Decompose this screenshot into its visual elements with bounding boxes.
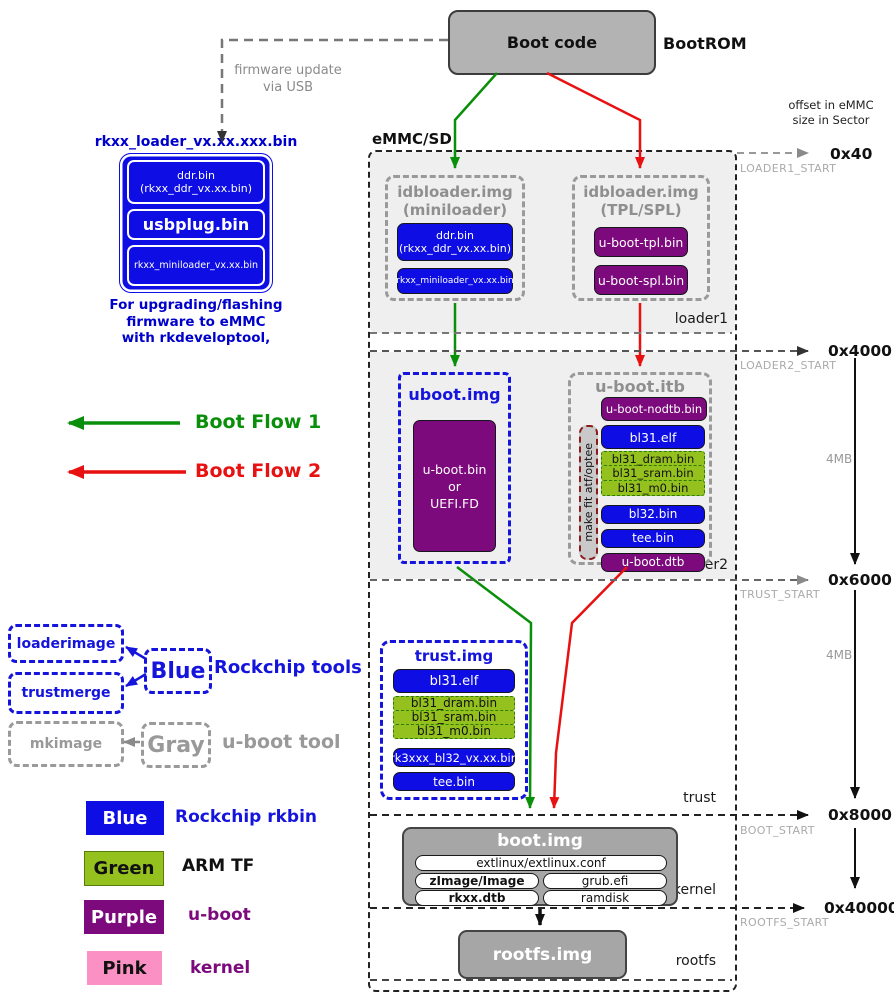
boot-flow-2-label: Boot Flow 2 xyxy=(195,460,321,482)
loader-tool-box: ddr.bin (rkxx_ddr_vx.xx.bin) usbplug.bin… xyxy=(120,154,272,292)
uboot-img-box: uboot.img u-boot.bin or UEFI.FD xyxy=(398,372,511,564)
trust-green-group: bl31_dram.bin bl31_sram.bin bl31_m0.bin xyxy=(393,696,515,740)
idbloader-tpl-title1: idbloader.img xyxy=(583,183,699,201)
trust-img-box: trust.img bl31.elf bl31_dram.bin bl31_sr… xyxy=(380,640,528,800)
make-fit-atf-optee-box: make fit atf/optee xyxy=(579,425,598,560)
trust-stack: bl31.elf bl31_dram.bin bl31_sram.bin bl3… xyxy=(393,669,515,791)
rootfs-start-label: ROOTFS_START xyxy=(740,916,829,929)
trustmerge-box: trustmerge xyxy=(8,672,124,714)
caption-line3: with rkdeveloptool, xyxy=(122,330,271,347)
boot-code-box: Boot code xyxy=(448,10,656,75)
uboot-itb-box: u-boot.itb u-boot-nodtb.bin make fit atf… xyxy=(568,372,712,565)
trust-bl31-dram: bl31_dram.bin xyxy=(393,696,515,712)
offset-0x40000: 0x40000 xyxy=(824,899,894,917)
trust-start-label: TRUST_START xyxy=(740,588,820,601)
uboot-nodtb-bin: u-boot-nodtb.bin xyxy=(601,397,707,421)
uboot-bin-line2: or xyxy=(448,478,461,495)
legend-swatch-pink: Pink xyxy=(87,951,162,985)
zimage-image: zImage/Image xyxy=(415,873,539,889)
loader-tool-caption: For upgrading/flashing firmware to eMMC … xyxy=(86,297,306,347)
uboot-itb-stack: bl31.elf bl31_dram.bin bl31_sram.bin bl3… xyxy=(601,425,705,572)
loader-tool-usbplug: usbplug.bin xyxy=(127,209,265,240)
boot-flow-diagram: Boot code BootROM offset in eMMC size in… xyxy=(0,0,894,1000)
offset-0x6000: 0x6000 xyxy=(828,571,892,589)
itb-green-group: bl31_dram.bin bl31_sram.bin bl31_m0.bin xyxy=(601,451,705,496)
trust-bl31-elf: bl31.elf xyxy=(393,669,515,693)
boot-img-title: boot.img xyxy=(404,831,676,851)
uboot-spl-bin: u-boot-spl.bin xyxy=(594,265,688,295)
legend-label-rockchip-rkbin: Rockchip rkbin xyxy=(175,807,317,827)
ddr-line2: (rkxx_ddr_vx.xx.bin) xyxy=(140,182,252,195)
blue-to-loaderimage-arrow xyxy=(126,647,146,659)
uboot-tpl-bin: u-boot-tpl.bin xyxy=(594,227,688,257)
size-4mb-1: 4MB xyxy=(826,452,852,466)
trust-bl31-m0: bl31_m0.bin xyxy=(393,724,515,740)
make-fit-label: make fit atf/optee xyxy=(582,443,595,542)
idbloader-miniloader-box: idbloader.img (miniloader) ddr.bin (rkxx… xyxy=(385,175,525,301)
grub-efi: grub.efi xyxy=(543,873,667,889)
legend-swatch-green: Green xyxy=(84,851,164,886)
loader-tool-ddr: ddr.bin (rkxx_ddr_vx.xx.bin) xyxy=(127,160,265,204)
loader-tool-title: rkxx_loader_vx.xx.xxx.bin xyxy=(86,134,306,150)
loader-tool-miniloader: rkxx_miniloader_vx.xx.bin xyxy=(127,245,265,286)
legend-label-arm-tf: ARM TF xyxy=(182,856,254,876)
size-4mb-2: 4MB xyxy=(826,648,852,662)
itb-bl31-elf: bl31.elf xyxy=(601,425,705,449)
itb-bl31-dram: bl31_dram.bin xyxy=(601,451,705,467)
ddr-line1: ddr.bin xyxy=(177,169,215,182)
blue-tool-box: Blue xyxy=(144,648,212,694)
emmc-label: eMMC/SD xyxy=(372,130,452,148)
legend-swatch-purple: Purple xyxy=(84,900,164,934)
rootfs-img-box: rootfs.img xyxy=(458,930,627,979)
loader2-start-label: LOADER2_START xyxy=(740,359,836,372)
itb-bl31-m0: bl31_m0.bin xyxy=(601,480,705,496)
gray-tool-box: Gray xyxy=(141,722,211,768)
loaderimage-box: loaderimage xyxy=(8,624,124,663)
trust-tee-bin: tee.bin xyxy=(393,772,515,791)
idbloader-mini-title1: idbloader.img xyxy=(397,183,513,201)
itb-bl31-sram: bl31_sram.bin xyxy=(601,465,705,481)
usb-note-line1: firmware update xyxy=(234,62,342,79)
uboot-itb-title: u-boot.itb xyxy=(571,377,709,396)
itb-bl32-bin: bl32.bin xyxy=(601,505,705,524)
rockchip-tools-label: Rockchip tools xyxy=(214,657,362,678)
boot-img-box: boot.img extlinux/extlinux.conf zImage/I… xyxy=(402,827,678,906)
caption-line2: firmware to eMMC xyxy=(126,314,265,331)
itb-uboot-dtb: u-boot.dtb xyxy=(601,553,705,572)
caption-line1: For upgrading/flashing xyxy=(109,297,282,314)
idbloader-tplspl-title: idbloader.img (TPL/SPL) xyxy=(584,183,698,219)
uboot-bin-line1: u-boot.bin xyxy=(423,461,487,478)
trust-bl32-bin: rk3xxx_bl32_vx.xx.bin xyxy=(393,748,515,767)
legend-label-kernel: kernel xyxy=(190,958,250,978)
blue-to-trustmerge-arrow xyxy=(126,674,146,686)
uboot-bin-line3: UEFI.FD xyxy=(430,495,479,512)
idbloader-mini-title2: (miniloader) xyxy=(403,201,507,219)
uboot-img-title: uboot.img xyxy=(401,385,508,404)
boot-flow-1-label: Boot Flow 1 xyxy=(195,411,321,433)
offset-0x40: 0x40 xyxy=(830,145,872,163)
mini-ddr-line1: ddr.bin xyxy=(436,229,474,243)
idbloader-mini-miniloader: rkxx_miniloader_vx.xx.bin xyxy=(397,268,513,294)
idbloader-tpl-title2: (TPL/SPL) xyxy=(600,201,681,219)
usb-note: firmware update via USB xyxy=(226,62,350,96)
rkxx-dtb: rkxx.dtb xyxy=(415,890,539,906)
offset-0x8000: 0x8000 xyxy=(828,806,892,824)
offset-note: offset in eMMC size in Sector xyxy=(775,98,887,128)
legend-swatch-blue: Blue xyxy=(86,801,164,835)
idbloader-tplspl-box: idbloader.img (TPL/SPL) u-boot-tpl.bin u… xyxy=(572,175,710,301)
uboot-bin-box: u-boot.bin or UEFI.FD xyxy=(413,420,496,552)
trust-bl31-sram: bl31_sram.bin xyxy=(393,710,515,726)
offset-0x4000: 0x4000 xyxy=(828,342,892,360)
offset-note-line2: size in Sector xyxy=(792,113,869,128)
loader1-start-label: LOADER1_START xyxy=(740,162,836,175)
mkimage-box: mkimage xyxy=(8,721,124,767)
extlinux-conf: extlinux/extlinux.conf xyxy=(415,855,667,871)
rootfs-section-label: rootfs xyxy=(644,953,716,969)
ramdisk: ramdisk xyxy=(543,890,667,906)
itb-tee-bin: tee.bin xyxy=(601,529,705,548)
boot-start-label: BOOT_START xyxy=(740,824,815,837)
legend-label-uboot: u-boot xyxy=(188,905,251,925)
bootrom-label: BootROM xyxy=(663,34,747,53)
uboot-tool-label: u-boot tool xyxy=(222,731,341,753)
trust-section-label: trust xyxy=(644,790,716,806)
usb-note-line2: via USB xyxy=(263,79,313,96)
offset-note-line1: offset in eMMC xyxy=(788,98,873,113)
loader1-section-label: loader1 xyxy=(656,311,728,327)
idbloader-miniloader-title: idbloader.img (miniloader) xyxy=(397,183,513,219)
idbloader-mini-ddr: ddr.bin (rkxx_ddr_vx.xx.bin) xyxy=(397,223,513,261)
trust-img-title: trust.img xyxy=(383,647,525,665)
mini-ddr-line2: (rkxx_ddr_vx.xx.bin) xyxy=(399,242,511,256)
